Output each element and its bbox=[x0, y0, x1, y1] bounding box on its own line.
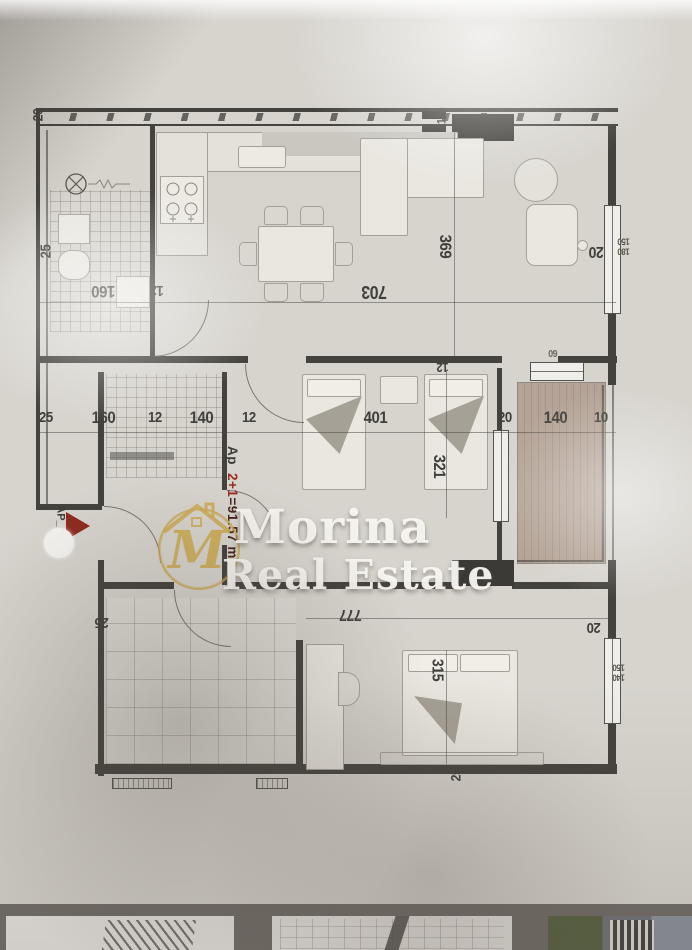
dining-table bbox=[258, 226, 334, 282]
dim-bedroom-window-h: 150 bbox=[613, 662, 625, 672]
balcony-rail bbox=[612, 385, 614, 560]
balcony-vent-window bbox=[530, 362, 584, 381]
entry-dot bbox=[44, 528, 74, 558]
dim-bedroom-window: 140 150 bbox=[613, 662, 625, 683]
side-table bbox=[577, 240, 588, 251]
wall-segment bbox=[608, 560, 616, 638]
shower-tray bbox=[116, 276, 150, 308]
balcony-door bbox=[493, 430, 509, 522]
wall-segment bbox=[36, 504, 102, 510]
wall-hatch bbox=[40, 113, 617, 121]
floor-plan: 20 25 160 12 703 369 120 20 180 150 25 1… bbox=[0, 0, 692, 950]
thumbnail-sketch bbox=[102, 920, 196, 950]
wall-segment bbox=[46, 130, 48, 504]
stove bbox=[160, 176, 204, 224]
dimension-line bbox=[446, 650, 447, 764]
dim-bedroom2-width: 777 bbox=[340, 606, 362, 622]
wall-segment bbox=[40, 124, 618, 126]
unit-area-label: Ap_2+1=91.57 m bbox=[225, 446, 240, 559]
dim-bath-side: 25 bbox=[38, 245, 53, 259]
dim-bedroom-depth: 321 bbox=[431, 455, 448, 479]
entry-label: AP_ bbox=[55, 505, 67, 526]
dim-chain-4: 12 bbox=[242, 410, 256, 425]
dim-living-depth: 369 bbox=[437, 235, 454, 259]
desk-chair bbox=[338, 672, 360, 706]
dim-balcony-width: 140 bbox=[544, 409, 568, 426]
dim-bath-wall: 12 bbox=[150, 283, 164, 298]
dim-living-window-h: 150 bbox=[618, 236, 630, 246]
dim-bottom-wall: 25 bbox=[448, 769, 462, 782]
wall-segment bbox=[40, 108, 618, 112]
corner-sofa bbox=[360, 138, 408, 236]
thumbnail-building-photo bbox=[548, 916, 692, 950]
thumbnail-structural-plan bbox=[6, 916, 234, 950]
wall-segment bbox=[306, 356, 502, 363]
wall-segment bbox=[40, 356, 248, 363]
dim-right-wall: 20 bbox=[589, 243, 604, 259]
dim-balcony-vent: 60 bbox=[549, 347, 558, 357]
photo-bottom-strip bbox=[0, 904, 692, 950]
pillow bbox=[460, 654, 510, 672]
dimension-line bbox=[446, 372, 447, 518]
unit-area: =91.57 m bbox=[225, 497, 240, 558]
washing-machine bbox=[58, 214, 90, 244]
nightstand bbox=[380, 376, 418, 404]
column bbox=[452, 560, 514, 586]
unit-type: 2+1 bbox=[225, 473, 240, 497]
wall-segment bbox=[512, 582, 612, 589]
dim-chain-2: 12 bbox=[148, 410, 162, 425]
toilet bbox=[58, 250, 90, 280]
dim-balcony-rail: 10 bbox=[594, 410, 608, 425]
dining-chair bbox=[300, 206, 324, 225]
dim-bath-width: 160 bbox=[92, 283, 116, 300]
dim-wall-top-left: 20 bbox=[30, 109, 44, 122]
balcony-rail bbox=[517, 560, 604, 562]
coffee-table bbox=[514, 158, 558, 202]
door-arc bbox=[104, 506, 161, 563]
wall-segment bbox=[95, 764, 617, 774]
wall-segment bbox=[36, 108, 40, 508]
dim-flue-width: 120 bbox=[435, 108, 447, 124]
floor-plan-photo: 20 25 160 12 703 369 120 20 180 150 25 1… bbox=[0, 0, 692, 950]
dining-chair bbox=[264, 283, 288, 302]
dim-living-window-w: 180 bbox=[618, 247, 630, 257]
living-room-window bbox=[604, 205, 621, 314]
dimension-line bbox=[36, 432, 616, 433]
dim-bedroom-window-w: 140 bbox=[613, 673, 625, 683]
wall-segment bbox=[608, 312, 616, 385]
pillow bbox=[307, 379, 361, 397]
bathroom-shelf bbox=[110, 452, 174, 460]
column-stub bbox=[422, 124, 446, 132]
dining-chair bbox=[239, 242, 257, 266]
bed-bench bbox=[380, 752, 544, 765]
wall-segment bbox=[232, 582, 454, 589]
dim-living-window: 180 150 bbox=[618, 236, 630, 257]
kitchen-sink bbox=[238, 146, 286, 168]
radiator bbox=[112, 778, 172, 789]
dim-chain-0: 25 bbox=[39, 410, 53, 425]
dim-right-wall-lower: 20 bbox=[587, 620, 601, 635]
wall-segment bbox=[98, 372, 104, 506]
dim-bedroom-width: 401 bbox=[364, 409, 388, 426]
dim-bedroom-wall: 12 bbox=[437, 361, 449, 374]
wall-segment bbox=[608, 126, 616, 205]
dining-chair bbox=[335, 242, 353, 266]
column bbox=[452, 114, 514, 141]
dining-chair bbox=[264, 206, 288, 225]
unit-prefix: Ap_ bbox=[225, 446, 240, 473]
dim-chain-3: 140 bbox=[190, 409, 214, 426]
desk bbox=[306, 644, 344, 770]
dining-chair bbox=[300, 283, 324, 302]
dim-chain-1: 160 bbox=[92, 409, 116, 426]
thumbnail-building-windows bbox=[610, 920, 654, 950]
dim-bed-width: 315 bbox=[429, 659, 445, 681]
wall-segment bbox=[296, 640, 303, 768]
thumbnail-site-map bbox=[272, 916, 512, 950]
pillow bbox=[429, 379, 483, 397]
wall-segment bbox=[608, 722, 616, 768]
door-arc bbox=[152, 300, 209, 357]
wall-segment bbox=[98, 560, 104, 776]
wall-segment bbox=[98, 582, 174, 589]
armchair bbox=[526, 204, 578, 266]
dim-living-width: 703 bbox=[362, 283, 387, 301]
dim-left-wall-lower: 25 bbox=[95, 615, 109, 630]
radiator bbox=[256, 778, 288, 789]
dimension-line bbox=[40, 302, 616, 303]
dim-balcony-wall: 20 bbox=[498, 410, 512, 425]
